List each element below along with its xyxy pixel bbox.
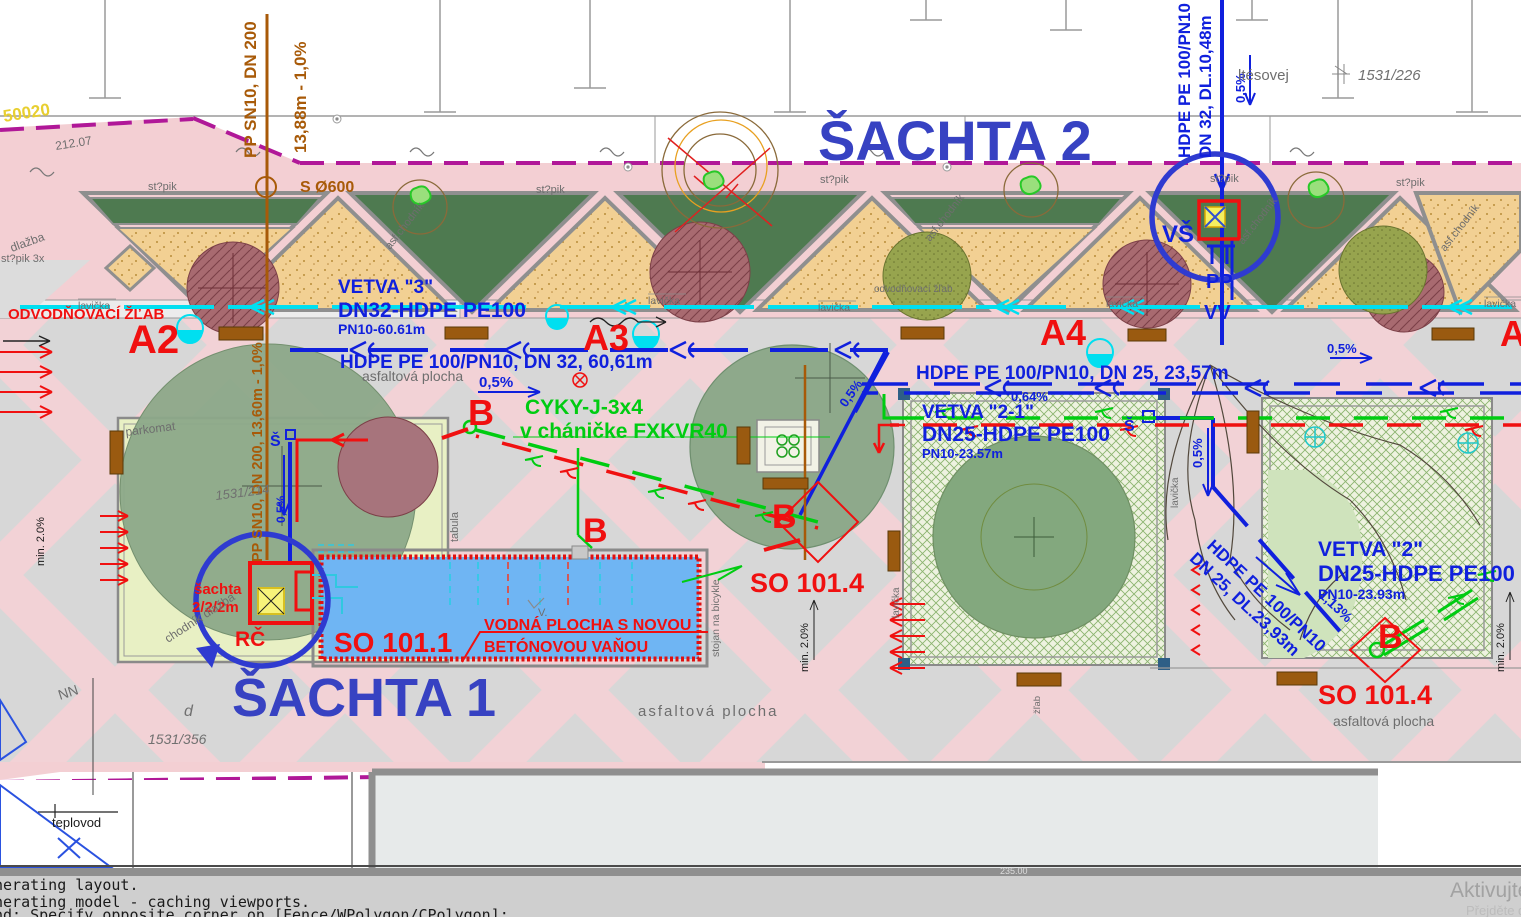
- label-lavicka-1: lavička: [78, 300, 110, 312]
- title-shaft2: ŠACHTA 2: [818, 109, 1092, 172]
- command-text-1: nerating layout.: [0, 876, 139, 894]
- label-slope05-right: 0,5%: [1190, 438, 1205, 468]
- label-odvod-small: odvodňovací žľab: [874, 284, 953, 295]
- planting-beds: [83, 193, 1521, 312]
- label-manhole: S Ø600: [300, 179, 354, 196]
- title-shaft1: ŠACHTA 1: [232, 667, 496, 728]
- label-vetva21: VETVA "2-1": [922, 402, 1034, 423]
- label-b1: B: [468, 392, 494, 433]
- label-min20-3: min. 2.0%: [1495, 623, 1507, 672]
- label-lavicka-4: lavička: [1106, 298, 1138, 310]
- label-a2: A2: [128, 318, 179, 362]
- label-b3: B: [772, 498, 797, 536]
- label-slope05-a: 0,5%: [479, 374, 513, 391]
- label-dn25-run: HDPE PE 100/PN10, DN 25, 23,57m: [916, 363, 1229, 384]
- label-lavicka-5: lavička: [1484, 298, 1516, 310]
- site-plan-drawing: ŠACHTA 2 ŠACHTA 1 A2 A3 A4 A B B B B SO …: [0, 0, 1521, 917]
- label-a-edge: A: [1500, 313, 1521, 354]
- label-cable-1: CYKY-J-3x4: [525, 396, 643, 419]
- label-sewer-2: 13,88m - 1,0%: [291, 41, 310, 153]
- label-sewer-1: PP SN10, DN 200: [241, 21, 260, 158]
- label-tabula: tabula: [449, 511, 461, 542]
- label-street: ltésovej: [1238, 67, 1289, 84]
- label-lavicka-3: lavička: [818, 302, 850, 314]
- label-pool-note-1: VODNÁ PLOCHA S NOVOU: [484, 615, 691, 634]
- label-vetva3-pipe: DN32-HDPE PE100: [338, 299, 526, 322]
- label-cable-2: v cháničke FXKVR40: [520, 420, 728, 443]
- label-min20-2: min. 2.0%: [799, 623, 811, 672]
- label-vetva3: VETVA "3": [338, 277, 433, 298]
- label-b2: B: [583, 512, 608, 550]
- label-stlpik-1: st?pik: [148, 181, 177, 193]
- label-stlpik-4: st?pik: [1210, 173, 1239, 185]
- label-teplovod: teplovod: [52, 815, 101, 830]
- label-vs: VŠ: [1162, 220, 1194, 248]
- label-slope05-left: 0,5%: [274, 495, 288, 523]
- label-sewer-3: PP SN10, DN 200, 13,60m - 1,0%: [250, 342, 266, 562]
- label-so101-4b: SO 101.4: [1318, 680, 1432, 710]
- label-zlab: žľab: [1032, 696, 1043, 714]
- label-so101-1: SO 101.1: [334, 627, 452, 658]
- label-d: d: [184, 703, 194, 720]
- label-riser-1: HDPE PE 100/PN10: [1175, 3, 1194, 158]
- label-stlpik-3: st?pik: [820, 174, 849, 186]
- label-asfalt-3: asfaltová plocha: [1333, 713, 1434, 729]
- label-vetva3-pn: PN10-60.61m: [338, 321, 425, 337]
- label-pool-note-2: BETÓNOVOU VAŇOU: [484, 637, 648, 656]
- label-riser-2: DN 32, DL.10,48m: [1196, 15, 1215, 158]
- label-b4: B: [1378, 618, 1403, 656]
- label-dim235: 235.00: [1000, 866, 1028, 876]
- label-parcel-356: 1531/356: [148, 731, 207, 747]
- label-lavicka-v2: lavička: [1170, 477, 1181, 508]
- label-so101-4a: SO 101.4: [750, 568, 864, 598]
- label-vetva2: VETVA "2": [1318, 538, 1423, 561]
- label-shaft-small-1: šachta: [194, 581, 242, 598]
- label-asfalt-1: asfaltová plocha: [362, 368, 463, 384]
- label-asfalt-2: asfaltová plocha: [638, 703, 778, 720]
- label-parcel-226: 1531/226: [1358, 67, 1421, 84]
- label-vetva21-pipe: DN25-HDPE PE100: [922, 423, 1110, 446]
- label-lavicka-v1: lavička: [891, 587, 902, 618]
- watermark-line2: Přejděte do: [1466, 903, 1521, 917]
- label-s-shaft-1: Š: [270, 431, 281, 450]
- cad-viewport[interactable]: ŠACHTA 2 ŠACHTA 1 A2 A3 A4 A B B B B SO …: [0, 0, 1521, 917]
- label-vetva21-pn: PN10-23.57m: [922, 446, 1003, 461]
- label-stlpik3x: st?pik 3x: [1, 253, 45, 265]
- label-pp: PP: [1206, 271, 1233, 293]
- label-a4: A4: [1040, 312, 1086, 353]
- label-min20-1: min. 2.0%: [35, 517, 47, 566]
- watermark-line1: Aktivujte: [1450, 879, 1521, 902]
- label-vv: VV: [1204, 302, 1231, 324]
- label-rc: RČ: [235, 627, 265, 651]
- label-stlpik-2: st?pik: [536, 184, 565, 196]
- label-lavicka-2: lavička: [648, 295, 680, 307]
- label-v-mark: V.: [538, 607, 547, 619]
- label-s-shaft-2: Š: [1124, 416, 1135, 435]
- label-stlpik-5: st?pik: [1396, 177, 1425, 189]
- command-text-3: nd: Specify opposite corner on [Fence/WP…: [0, 906, 509, 917]
- label-stojan: stojan na bicykle: [710, 579, 722, 657]
- label-slope05-b: 0,5%: [1327, 341, 1357, 356]
- label-vetva2-pipe: DN25-HDPE PE100: [1318, 561, 1515, 586]
